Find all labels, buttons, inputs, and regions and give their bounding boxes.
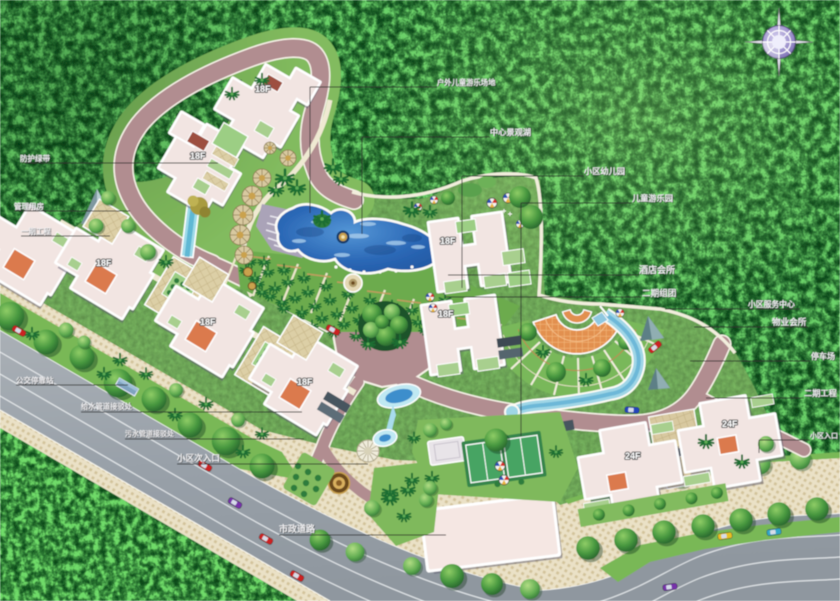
svg-text:小区入口: 小区入口 [809, 431, 838, 440]
svg-text:给水管道接驳处: 给水管道接驳处 [81, 402, 133, 411]
svg-text:污水管道接驳处: 污水管道接驳处 [125, 429, 175, 438]
svg-text:户外儿童游乐场地: 户外儿童游乐场地 [436, 78, 496, 87]
svg-text:防护绿带: 防护绿带 [20, 153, 50, 163]
svg-text:18F: 18F [190, 151, 206, 161]
svg-text:儿童游乐园: 儿童游乐园 [631, 193, 673, 203]
svg-text:18F: 18F [297, 377, 313, 387]
svg-text:二期工程: 二期工程 [804, 388, 838, 398]
svg-text:18F: 18F [200, 317, 216, 327]
svg-text:停车场: 停车场 [811, 351, 835, 361]
svg-text:市政道路: 市政道路 [279, 523, 316, 534]
svg-text:一期工程: 一期工程 [21, 226, 51, 236]
svg-text:管理用房: 管理用房 [14, 201, 44, 211]
svg-text:18F: 18F [96, 258, 112, 268]
svg-text:18F: 18F [440, 236, 456, 246]
svg-text:中心景观湖: 中心景观湖 [490, 127, 531, 137]
svg-text:24F: 24F [722, 419, 738, 429]
svg-text:24F: 24F [625, 451, 641, 461]
svg-text:18F: 18F [255, 84, 271, 94]
svg-text:公交停靠站: 公交停靠站 [16, 375, 54, 385]
svg-text:酒店会所: 酒店会所 [639, 264, 675, 275]
svg-text:物业会所: 物业会所 [772, 316, 807, 327]
svg-text:小区幼儿园: 小区幼儿园 [583, 166, 625, 176]
svg-text:18F: 18F [438, 309, 454, 319]
svg-text:二期组团: 二期组团 [642, 287, 677, 298]
svg-text:小区次入口: 小区次入口 [176, 452, 220, 463]
svg-text:小区服务中心: 小区服务中心 [747, 299, 795, 309]
